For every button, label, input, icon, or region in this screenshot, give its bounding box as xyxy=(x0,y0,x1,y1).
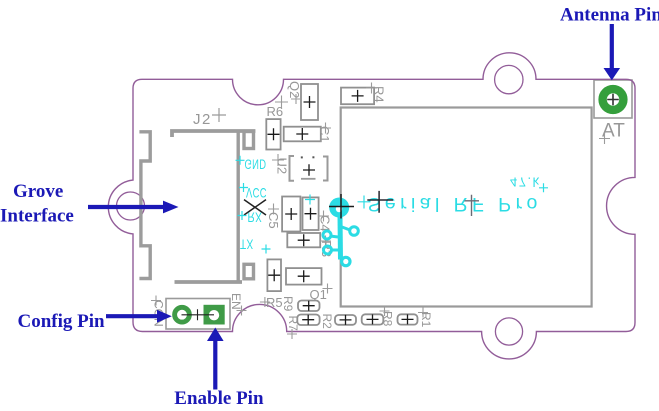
svg-text:RX: RX xyxy=(248,209,263,225)
svg-text:R1: R1 xyxy=(419,312,433,328)
svg-text:Interface: Interface xyxy=(0,206,74,227)
svg-text:J2: J2 xyxy=(193,111,212,128)
svg-text:Enable Pin: Enable Pin xyxy=(174,388,264,409)
svg-text:47.k: 47.k xyxy=(510,175,541,190)
svg-text:Q2: Q2 xyxy=(287,81,302,98)
svg-text:TX: TX xyxy=(240,236,254,252)
svg-text:R6: R6 xyxy=(267,104,284,119)
svg-text:Antenna Pin: Antenna Pin xyxy=(560,5,659,26)
svg-text:Grove: Grove xyxy=(13,181,63,202)
svg-text:VCC: VCC xyxy=(246,184,267,200)
svg-text:C4: C4 xyxy=(318,215,333,232)
svg-text:GND: GND xyxy=(245,156,267,172)
svg-text:Config Pin: Config Pin xyxy=(18,311,106,332)
svg-text:R2: R2 xyxy=(320,314,334,330)
svg-text:EN: EN xyxy=(229,293,243,310)
svg-text:R8: R8 xyxy=(381,311,395,327)
svg-text:Serial RF Pro: Serial RF Pro xyxy=(368,193,542,215)
svg-text:R9: R9 xyxy=(281,296,295,312)
